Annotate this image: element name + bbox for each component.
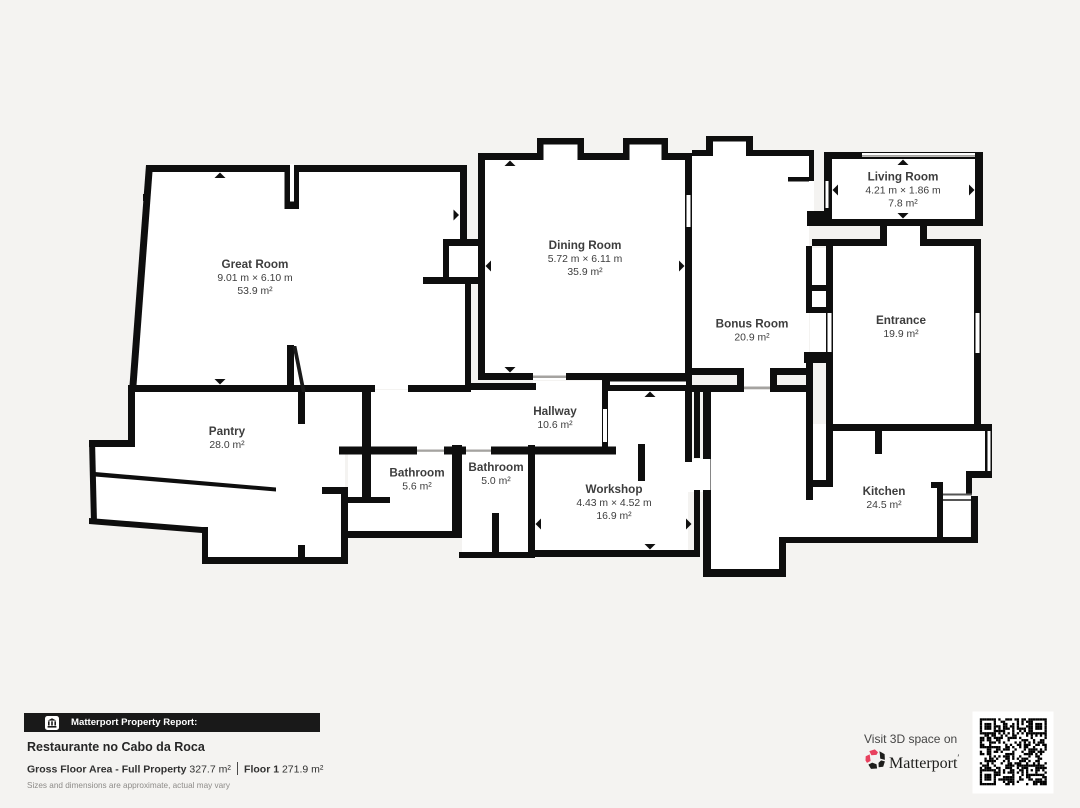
svg-text:5.6 m²: 5.6 m²: [402, 481, 432, 492]
svg-text:9.01 m × 6.10 m: 9.01 m × 6.10 m: [217, 273, 292, 284]
svg-text:Workshop: Workshop: [586, 483, 643, 496]
svg-text:Bathroom: Bathroom: [389, 467, 444, 480]
svg-text:28.0 m²: 28.0 m²: [209, 440, 245, 451]
svg-text:19.9 m²: 19.9 m²: [883, 329, 919, 340]
svg-text:24.5 m²: 24.5 m²: [866, 500, 902, 511]
svg-text:7.8 m²: 7.8 m²: [888, 198, 918, 209]
svg-text:Hallway: Hallway: [533, 405, 577, 418]
svg-text:Entrance: Entrance: [876, 314, 927, 327]
svg-text:5.0 m²: 5.0 m²: [481, 476, 511, 487]
svg-text:Dining Room: Dining Room: [549, 239, 622, 252]
svg-text:Great Room: Great Room: [222, 258, 289, 271]
svg-text:5.72 m × 6.11 m: 5.72 m × 6.11 m: [548, 254, 623, 265]
svg-text:4.43 m × 4.52 m: 4.43 m × 4.52 m: [576, 498, 651, 509]
svg-text:Bathroom: Bathroom: [468, 461, 523, 474]
svg-text:4.21 m × 1.86 m: 4.21 m × 1.86 m: [865, 185, 940, 196]
svg-text:35.9 m²: 35.9 m²: [567, 267, 603, 278]
svg-text:20.9 m²: 20.9 m²: [734, 332, 770, 343]
svg-text:Living Room: Living Room: [868, 171, 939, 184]
svg-text:10.6 m²: 10.6 m²: [537, 420, 573, 431]
svg-text:53.9 m²: 53.9 m²: [237, 286, 273, 297]
svg-text:Pantry: Pantry: [209, 425, 246, 438]
svg-text:16.9 m²: 16.9 m²: [596, 511, 632, 522]
svg-text:Bonus Room: Bonus Room: [716, 318, 789, 331]
svg-text:Kitchen: Kitchen: [863, 485, 906, 498]
